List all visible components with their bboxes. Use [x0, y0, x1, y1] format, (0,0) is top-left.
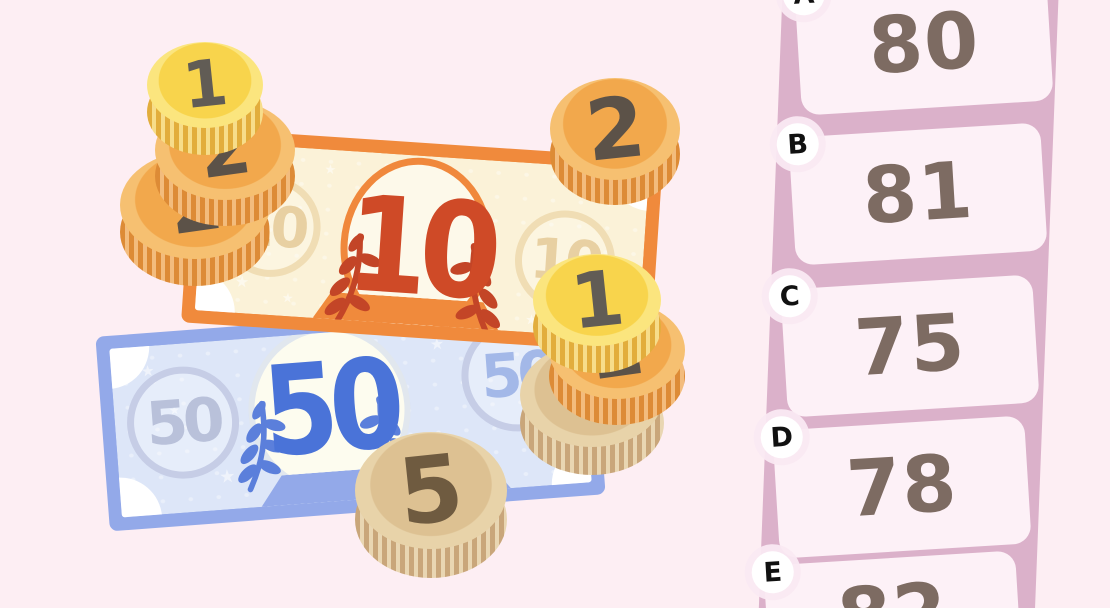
- corner-cutout: [109, 475, 165, 518]
- answer-option-b[interactable]: 81 B: [788, 122, 1047, 265]
- answer-value: 82: [834, 555, 950, 608]
- answer-letter: E: [763, 558, 783, 586]
- answer-letter: D: [770, 423, 794, 451]
- answer-value: 78: [844, 445, 959, 530]
- star-decor: ★: [281, 292, 293, 306]
- coin-value: 5: [394, 441, 467, 539]
- answer-letter: A: [792, 0, 815, 8]
- coin-face: 5: [355, 432, 507, 549]
- answer-value: 80: [866, 2, 981, 87]
- coin-1-gold: 1: [533, 254, 661, 374]
- answer-option-a[interactable]: 80 A: [794, 0, 1053, 116]
- answer-option-c[interactable]: 75 C: [780, 274, 1039, 417]
- answer-letter: C: [779, 282, 800, 310]
- worksheet-stage: ★ ★ ★ ★ ★ ★ 50 50: [0, 0, 1110, 608]
- watermark-value: 50: [144, 385, 223, 460]
- answer-value: 81: [860, 152, 975, 237]
- note-value: 10: [315, 163, 525, 333]
- coin-face: 1: [533, 254, 661, 346]
- coin-face: 2: [550, 78, 680, 180]
- coin-value: 2: [582, 84, 649, 174]
- answer-option-d[interactable]: 78 D: [772, 415, 1031, 558]
- coin-2-copper: 2: [550, 78, 680, 206]
- coin-5-tan: 5: [355, 432, 507, 580]
- answer-value: 75: [852, 304, 967, 389]
- coin-face: 1: [147, 42, 263, 128]
- coin-value: 1: [567, 259, 628, 340]
- coin-1-gold: 1: [147, 42, 263, 158]
- coin-value: 1: [180, 51, 231, 119]
- answer-letter: B: [787, 130, 809, 158]
